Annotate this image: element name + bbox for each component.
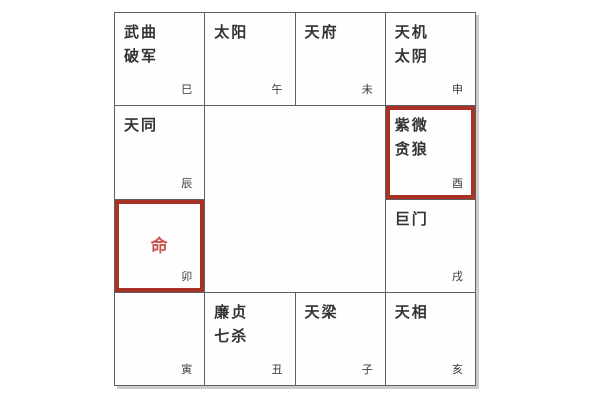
branch-label: 子 — [362, 361, 373, 377]
palace-cell-hai: 天相 亥 — [386, 293, 475, 385]
branch-label: 寅 — [181, 361, 192, 377]
ming-label: 命 — [151, 231, 169, 256]
star-names: 天相 — [395, 300, 429, 324]
star-names: 天府 — [305, 20, 339, 44]
star-names: 武曲 破军 — [124, 20, 158, 68]
palace-cell-chen: 天同 辰 — [115, 106, 204, 198]
star-names: 太阳 — [214, 20, 248, 44]
star-names: 天梁 — [305, 300, 339, 324]
palace-cell-wu: 太阳 午 — [205, 13, 294, 105]
star-names: 天同 — [124, 113, 158, 137]
branch-label: 亥 — [452, 361, 463, 377]
palace-cell-you: 紫微 贪狼 酉 — [386, 106, 475, 198]
branch-label: 午 — [272, 81, 283, 97]
star-names: 天机 太阴 — [395, 20, 429, 68]
palace-cell-shen: 天机 太阴 申 — [386, 13, 475, 105]
center-area — [205, 106, 385, 292]
star-names: 巨门 — [395, 207, 429, 231]
branch-label: 戌 — [452, 268, 463, 284]
branch-label: 卯 — [181, 268, 192, 284]
branch-label: 辰 — [181, 175, 192, 191]
branch-label: 丑 — [272, 361, 283, 377]
branch-label: 未 — [362, 81, 373, 97]
palace-cell-si: 武曲 破军 巳 — [115, 13, 204, 105]
ziwei-chart-grid: 武曲 破军 巳 太阳 午 天府 未 天机 太阴 申 天同 辰 紫微 贪狼 酉 命 — [114, 12, 476, 386]
palace-cell-zi: 天梁 子 — [296, 293, 385, 385]
chart-canvas: 武曲 破军 巳 太阳 午 天府 未 天机 太阴 申 天同 辰 紫微 贪狼 酉 命 — [0, 0, 600, 400]
branch-label: 酉 — [452, 175, 463, 191]
palace-cell-wei: 天府 未 — [296, 13, 385, 105]
palace-cell-xu: 巨门 戌 — [386, 200, 475, 292]
star-names: 廉贞 七杀 — [214, 300, 248, 348]
palace-cell-chou: 廉贞 七杀 丑 — [205, 293, 294, 385]
branch-label: 申 — [452, 81, 463, 97]
star-names: 紫微 贪狼 — [395, 113, 429, 161]
palace-cell-mao-ming: 命 卯 — [115, 200, 204, 292]
branch-label: 巳 — [181, 81, 192, 97]
palace-cell-yin: 寅 — [115, 293, 204, 385]
